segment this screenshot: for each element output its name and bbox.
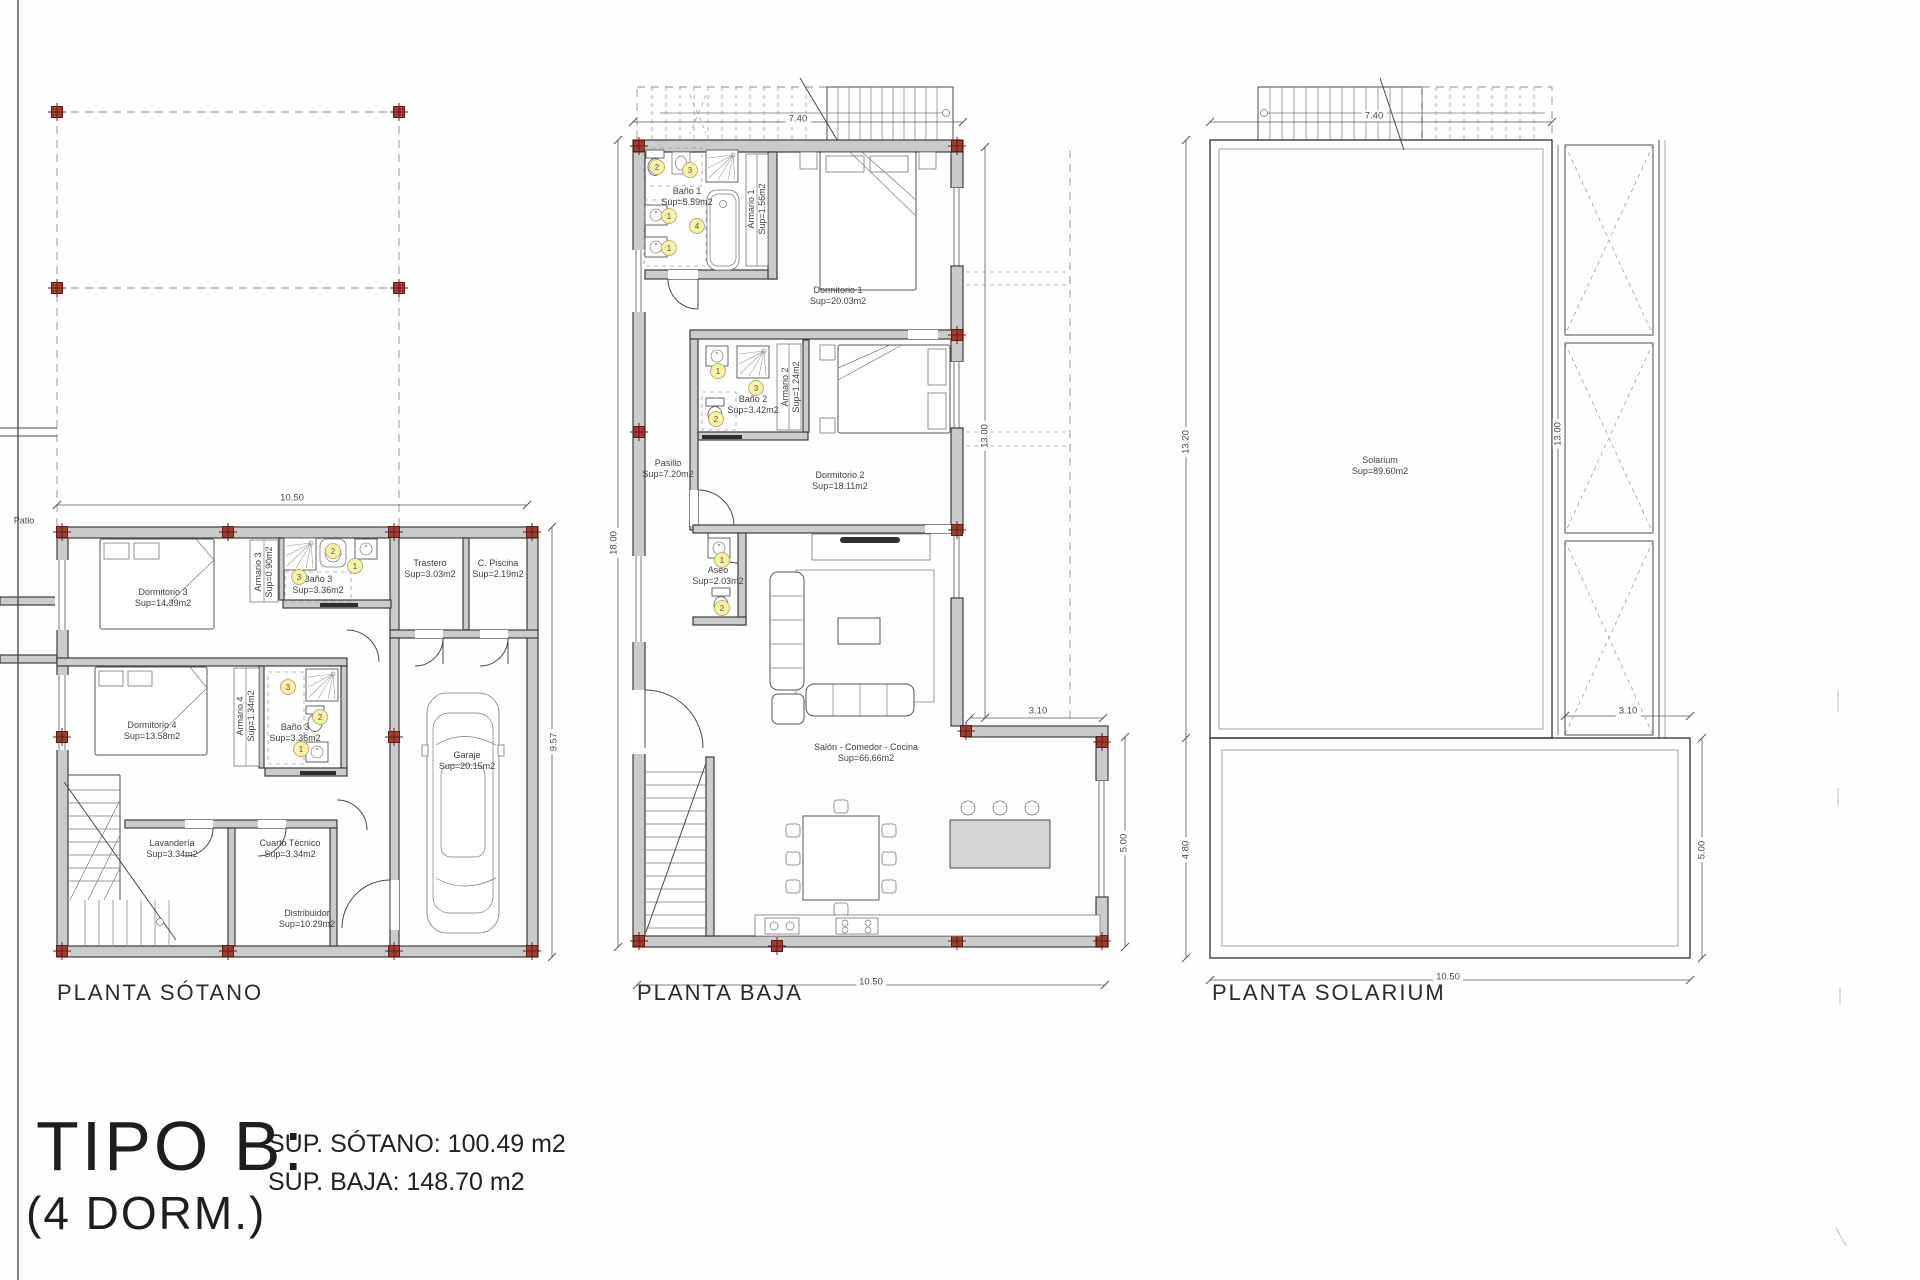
solarium-plan bbox=[1182, 78, 1706, 984]
sotano-plan bbox=[0, 103, 556, 961]
fixture-badge: 2 bbox=[312, 709, 328, 725]
solarium-dimensions bbox=[1182, 118, 1706, 984]
room-label-bano-4: Baño 3Sup=3.36m2 bbox=[269, 722, 320, 744]
room-label-distribuidor: DistribuidorSup=10.29m2 bbox=[279, 908, 335, 930]
car bbox=[422, 693, 504, 933]
sotano-patio-walls bbox=[0, 428, 57, 663]
room-label-trastero: TrasteroSup=3.03m2 bbox=[404, 558, 455, 580]
fixture-badge: 2 bbox=[325, 543, 341, 559]
fixture-badge: 2 bbox=[649, 159, 665, 175]
room-label-bano-2: Baño 2Sup=3.42m2 bbox=[727, 394, 778, 416]
room-label-armario-4: Armario 4Sup=1.34m2 bbox=[235, 690, 257, 741]
sup-sotano-text: SUP. SÓTANO: 100.49 m2 bbox=[268, 1130, 566, 1159]
dim-solarium-right-upper: 13.00 bbox=[1553, 419, 1564, 449]
solarium-trellis bbox=[1565, 140, 1665, 738]
room-label-dormitorio-2: Dormitorio 2Sup=18.11m2 bbox=[812, 470, 868, 492]
dim-sotano-width: 10.50 bbox=[277, 493, 307, 504]
fixture-badge: 1 bbox=[661, 208, 677, 224]
type-title: TIPO B: bbox=[36, 1106, 306, 1186]
room-label-pasillo: PasilloSup=7.20m2 bbox=[642, 458, 693, 480]
plan-linework bbox=[0, 0, 1920, 1280]
dim-baja-terrace: 5.00 bbox=[1119, 831, 1130, 856]
dim-solarium-top: 7.40 bbox=[1362, 111, 1387, 122]
baja-stairs bbox=[646, 763, 706, 932]
dim-solarium-left-lower: 4.80 bbox=[1181, 838, 1192, 863]
fixture-badge: 1 bbox=[661, 240, 677, 256]
dim-baja-right: 13.00 bbox=[980, 421, 991, 451]
fixture-badge: 1 bbox=[293, 741, 309, 757]
fixture-badge: 4 bbox=[689, 218, 705, 234]
dim-baja-bottom: 10.50 bbox=[856, 977, 886, 988]
sotano-stairs bbox=[64, 775, 176, 946]
room-label-cuarto-tecnico: Cuarto TécnicoSup=3.34m2 bbox=[260, 838, 321, 860]
dim-sotano-height: 9.57 bbox=[549, 730, 560, 755]
fixture-badge: 1 bbox=[347, 558, 363, 574]
room-label-dormitorio-1: Dormitorio 1Sup=20.03m2 bbox=[810, 285, 866, 307]
fixture-badge: 3 bbox=[280, 679, 296, 695]
solarium-walls bbox=[1210, 140, 1690, 958]
fixture-badge: 1 bbox=[714, 552, 730, 568]
fixture-badge: 2 bbox=[708, 411, 724, 427]
dim-baja-ext: 3.10 bbox=[1026, 706, 1051, 717]
room-label-lavanderia: LavanderíaSup=3.34m2 bbox=[146, 838, 197, 860]
room-label-armario-3: Armario 3Sup=0.90m2 bbox=[253, 546, 275, 597]
room-label-armario-1: Armario 1Sup=1.56m2 bbox=[746, 183, 768, 234]
dorm-subtitle: (4 DORM.) bbox=[26, 1186, 266, 1240]
fixture-badge: 3 bbox=[748, 380, 764, 396]
solarium-stair bbox=[1258, 78, 1552, 150]
fixture-badge: 3 bbox=[291, 569, 307, 585]
fixture-badge: 3 bbox=[682, 162, 698, 178]
fixture-badge: 2 bbox=[714, 600, 730, 616]
dim-solarium-right-lower: 5.00 bbox=[1697, 838, 1708, 863]
sheet-artifacts bbox=[18, 0, 1846, 1280]
plan-title-baja: PLANTA BAJA bbox=[637, 980, 803, 1006]
floor-plan-sheet: Dormitorio 3Sup=14.39m2 Armario 3Sup=0.9… bbox=[0, 0, 1920, 1280]
sotano-projection-grid bbox=[48, 103, 408, 527]
dim-baja-top: 7.40 bbox=[786, 114, 811, 125]
dim-solarium-left-upper: 13.20 bbox=[1181, 427, 1192, 457]
room-label-dormitorio-4: Dormitorio 4Sup=13.58m2 bbox=[124, 720, 180, 742]
sup-baja-text: SUP. BAJA: 148.70 m2 bbox=[268, 1168, 525, 1197]
fixture-badge: 1 bbox=[710, 363, 726, 379]
room-label-c-piscina: C. PiscinaSup=2.19m2 bbox=[472, 558, 523, 580]
dim-baja-left: 18.00 bbox=[609, 528, 620, 558]
baja-plan bbox=[614, 78, 1129, 989]
room-label-aseo: AseoSup=2.03m2 bbox=[692, 565, 743, 587]
dim-solarium-ext: 3.10 bbox=[1616, 706, 1641, 717]
plan-title-sotano: PLANTA SÓTANO bbox=[57, 980, 263, 1006]
plan-title-solarium: PLANTA SOLARIUM bbox=[1212, 980, 1446, 1006]
patio-label: Patio bbox=[14, 516, 35, 527]
room-label-garaje: GarajeSup=20.15m2 bbox=[439, 750, 495, 772]
room-label-solarium: SolariumSup=89.60m2 bbox=[1352, 455, 1408, 477]
room-label-bano-1: Baño 1Sup=5.59m2 bbox=[661, 186, 712, 208]
room-label-salon-comedor-cocina: Salón - Comedor - CocinaSup=66.66m2 bbox=[814, 742, 918, 764]
room-label-dormitorio-3: Dormitorio 3Sup=14.39m2 bbox=[135, 587, 191, 609]
room-label-armario-2: Armario 2Sup=1.24m2 bbox=[780, 361, 802, 412]
